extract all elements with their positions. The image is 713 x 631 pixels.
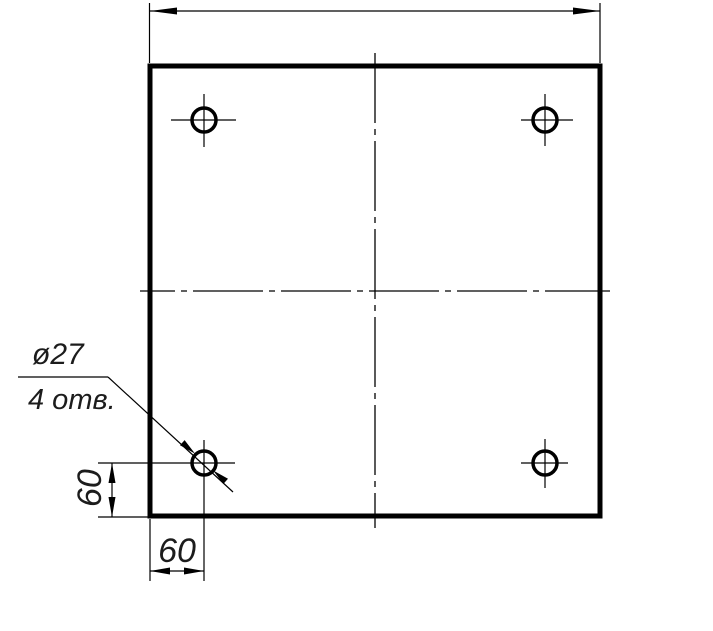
annotation-text: ø27 4 отв. 60 60 — [28, 338, 196, 570]
technical-drawing-canvas: ø27 4 отв. 60 60 — [0, 0, 713, 631]
arrowhead-right-icon — [573, 8, 600, 15]
hole-bottom-right — [521, 439, 568, 488]
dim-label-bottom: 60 — [158, 532, 196, 570]
leader-arrowhead-icon — [213, 470, 228, 484]
arrowhead-down-icon — [109, 497, 116, 517]
hole-crosshair — [521, 439, 568, 488]
leader-line — [108, 377, 233, 492]
arrowhead-left-icon — [150, 8, 177, 15]
hole-top-left — [171, 94, 236, 147]
drawing-svg: ø27 4 отв. 60 60 — [0, 0, 713, 631]
hole-crosshair — [171, 94, 236, 147]
hole-count-label: 4 отв. — [28, 384, 116, 416]
leader-arrowhead-icon — [180, 440, 195, 454]
hole-crosshair — [521, 94, 573, 146]
dim-label-left: 60 — [71, 469, 109, 507]
hole-top-right — [521, 94, 573, 146]
hole-diameter-label: ø27 — [32, 338, 85, 371]
arrowhead-up-icon — [109, 463, 116, 483]
